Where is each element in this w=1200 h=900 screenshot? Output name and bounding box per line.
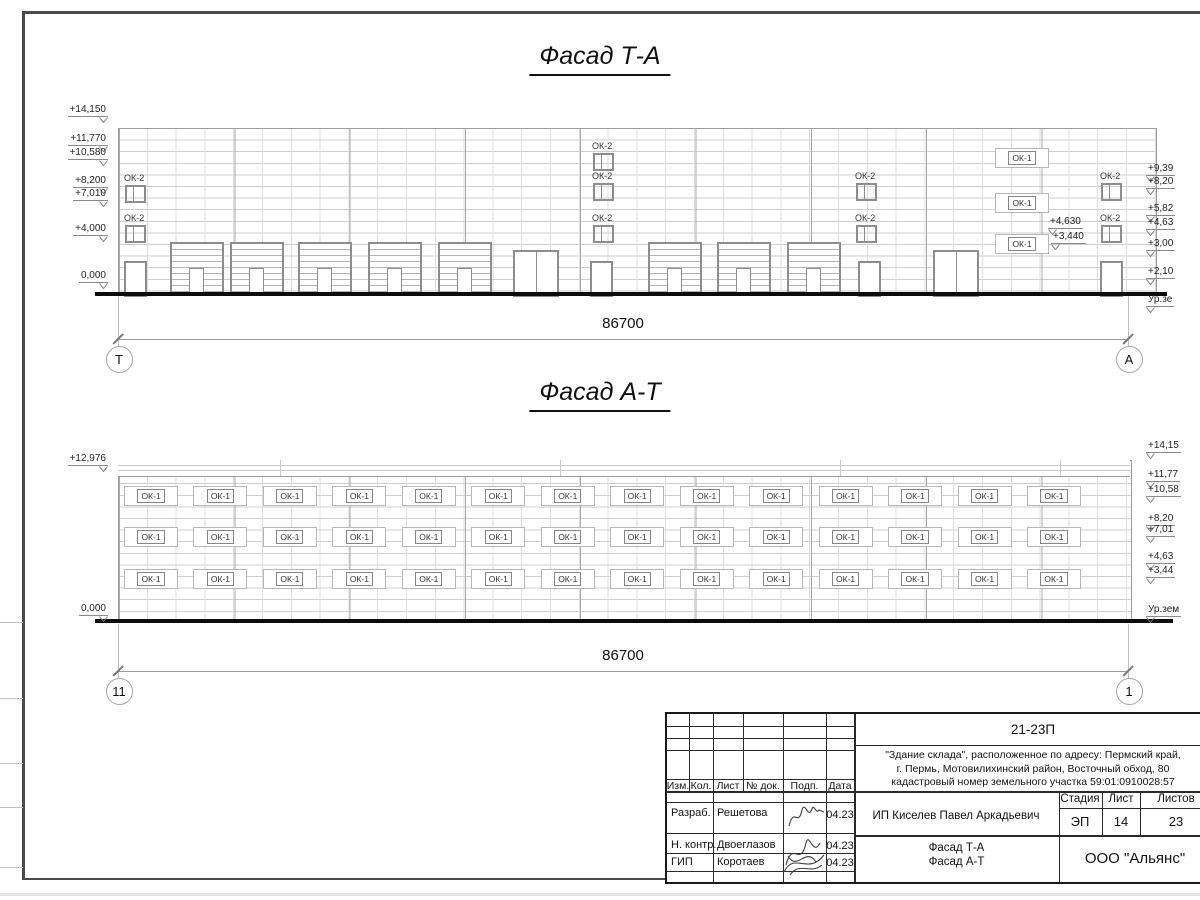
double-door <box>513 250 559 297</box>
elevation-mark-icon <box>1146 617 1155 623</box>
elevation-label: +3,44 <box>1146 565 1175 584</box>
window-label: ОК-1 <box>485 489 512 503</box>
window-label: ОК-1 <box>1008 151 1035 165</box>
window-ok1: ОК-1 <box>680 569 734 589</box>
facade2-dimension-value: 86700 <box>602 647 644 664</box>
tb-line <box>854 745 1200 746</box>
window-ok1: ОК-1 <box>749 569 803 589</box>
window-ok2 <box>856 225 877 243</box>
tb-line <box>667 726 854 727</box>
elevation-mark-icon <box>1146 189 1155 195</box>
title-block: Изм. Кол. Лист № док. Подп. Дата 21-23П … <box>665 712 1200 884</box>
window-label: ОК-1 <box>901 530 928 544</box>
elevation-label: +2,10 <box>1146 266 1175 285</box>
facade1-title: Фасад Т-А <box>529 42 670 76</box>
window-ok1: ОК-1 <box>263 569 317 589</box>
elevation-value: +12,976 <box>68 453 108 466</box>
elevation-label: +7,01 <box>1146 524 1175 543</box>
elevation-label: +10,580 <box>68 147 108 166</box>
facade2-ground-line <box>95 619 1173 623</box>
window-label: ОК-1 <box>1040 530 1067 544</box>
window-ok1: ОК-1 <box>124 527 178 547</box>
elevation-mark-icon <box>99 616 108 622</box>
window-ok1: ОК-1 <box>1027 527 1081 547</box>
elevation-label: 0,000 <box>79 270 108 289</box>
window-label: ОК-1 <box>693 489 720 503</box>
drawing-sheet: Фасад Т-А 86700 Т А Фасад А-Т 86700 11 1 <box>0 0 1200 900</box>
side-stamp-line <box>0 698 23 699</box>
elevation-label: +14,150 <box>68 104 108 123</box>
elevation-mark-icon <box>1146 251 1155 257</box>
window-label: ОК-2 <box>1100 171 1120 181</box>
elevation-value: Ур.зе <box>1146 294 1174 307</box>
window-ok1: ОК-1 <box>402 486 456 506</box>
elevation-value: +3,440 <box>1051 231 1086 244</box>
window-ok1: ОК-1 <box>888 486 942 506</box>
axis-bubble-1: 1 <box>1116 678 1143 705</box>
tb-project-description: "Здание склада", расположенное по адресу… <box>854 749 1200 790</box>
elevation-value: +5,82 <box>1146 203 1175 216</box>
window-label: ОК-1 <box>554 530 581 544</box>
tb-rev-header: Кол. <box>691 780 712 792</box>
window-ok1: ОК-1 <box>995 234 1049 254</box>
window-label: ОК-2 <box>855 213 875 223</box>
elevation-value: +8,200 <box>73 175 108 188</box>
gate-wicket-door <box>736 268 751 294</box>
window-label: ОК-1 <box>346 572 373 586</box>
window-ok1: ОК-1 <box>995 148 1049 168</box>
window-label: ОК-1 <box>137 489 164 503</box>
elevation-label: +4,000 <box>73 223 108 242</box>
window-ok2 <box>593 183 614 201</box>
parapet-joint <box>840 460 841 476</box>
window-ok1: ОК-1 <box>541 569 595 589</box>
window-label: ОК-2 <box>592 141 612 151</box>
window-ok2 <box>593 153 614 171</box>
elevation-mark-icon <box>1146 497 1155 503</box>
window-label: ОК-1 <box>207 572 234 586</box>
elevation-mark-icon <box>1146 578 1155 584</box>
elevation-value: +10,580 <box>68 147 108 160</box>
window-ok1: ОК-1 <box>193 486 247 506</box>
window-label: ОК-1 <box>763 489 790 503</box>
tb-sheet-value: 14 <box>1114 814 1128 829</box>
facade1-ground-line <box>95 292 1167 296</box>
tb-date: 04.23 <box>826 857 854 869</box>
tb-total-value: 23 <box>1169 814 1183 829</box>
window-ok1: ОК-1 <box>541 486 595 506</box>
elevation-label: +8,20 <box>1146 176 1175 195</box>
window-ok1: ОК-1 <box>680 527 734 547</box>
elevation-value: +8,20 <box>1146 176 1175 189</box>
facade2-dimension-line <box>118 671 1128 672</box>
sectional-gate <box>717 242 771 296</box>
elevation-label: +3,00 <box>1146 238 1175 257</box>
tb-line <box>667 750 854 751</box>
sectional-gate <box>230 242 284 296</box>
window-label: ОК-1 <box>554 572 581 586</box>
tb-stage-label: Стадия <box>1060 793 1099 805</box>
elevation-label: Ур.зе <box>1146 294 1174 313</box>
window-label: ОК-1 <box>1008 237 1035 251</box>
elevation-value: 0,000 <box>79 603 108 616</box>
sheet-border-top <box>23 11 1200 14</box>
gate-wicket-door <box>189 268 204 294</box>
window-ok2 <box>1101 225 1122 243</box>
window-ok1: ОК-1 <box>471 486 525 506</box>
facade2-parapet <box>118 460 1130 477</box>
window-label: ОК-1 <box>624 489 651 503</box>
window-label: ОК-1 <box>415 489 442 503</box>
elevation-mark-icon <box>1146 307 1155 313</box>
window-ok1: ОК-1 <box>749 527 803 547</box>
window-label: ОК-1 <box>832 530 859 544</box>
window-label: ОК-1 <box>276 572 303 586</box>
window-ok1: ОК-1 <box>958 569 1012 589</box>
window-label: ОК-1 <box>346 489 373 503</box>
elevation-label: +12,976 <box>68 453 108 472</box>
facade1-dimension-value: 86700 <box>602 315 644 332</box>
gate-wicket-door <box>249 268 264 294</box>
window-ok1: ОК-1 <box>193 527 247 547</box>
window-label: ОК-1 <box>415 572 442 586</box>
window-ok1: ОК-1 <box>332 569 386 589</box>
tb-role: Н. контр. <box>671 839 716 851</box>
window-ok1: ОК-1 <box>1027 486 1081 506</box>
window-ok1: ОК-1 <box>819 569 873 589</box>
facade1-dimension-line <box>118 339 1128 340</box>
side-stamp-line <box>0 807 23 808</box>
axis-bubble-T: Т <box>106 346 133 373</box>
elevation-value: +9,39 <box>1146 163 1175 176</box>
gate-wicket-door <box>387 268 402 294</box>
window-label: ОК-1 <box>1040 572 1067 586</box>
elevation-label: Ур.зем <box>1146 604 1181 623</box>
window-label: ОК-1 <box>346 530 373 544</box>
window-label: ОК-1 <box>1008 196 1035 210</box>
tb-role: ГИП <box>671 856 693 868</box>
gate-wicket-door <box>667 268 682 294</box>
tb-rev-header: Подп. <box>791 780 819 792</box>
window-label: ОК-1 <box>485 572 512 586</box>
window-ok1: ОК-1 <box>888 569 942 589</box>
window-label: ОК-1 <box>1040 489 1067 503</box>
tb-drawing-title: Фасад Т-А Фасад А-Т <box>854 842 1059 869</box>
window-label: ОК-1 <box>763 530 790 544</box>
elevation-mark-icon <box>1146 279 1155 285</box>
parapet-joint <box>1060 460 1061 476</box>
window-ok1: ОК-1 <box>610 527 664 547</box>
elevation-value: +11,770 <box>68 133 108 146</box>
window-label: ОК-1 <box>971 489 998 503</box>
elevation-mark-icon <box>1051 244 1060 250</box>
window-ok1: ОК-1 <box>263 527 317 547</box>
elevation-value: +7,01 <box>1146 524 1175 537</box>
tb-rev-header: Дата <box>828 780 851 792</box>
window-ok1: ОК-1 <box>958 486 1012 506</box>
tb-stage-value: ЭП <box>1071 814 1090 829</box>
window-label: ОК-2 <box>124 173 144 183</box>
window-ok1: ОК-1 <box>995 193 1049 213</box>
window-ok1: ОК-1 <box>402 569 456 589</box>
window-ok2 <box>856 183 877 201</box>
window-ok1: ОК-1 <box>1027 569 1081 589</box>
window-ok1: ОК-1 <box>888 527 942 547</box>
tb-rev-header: Изм. <box>667 780 690 792</box>
sectional-gate <box>787 242 841 296</box>
window-label: ОК-1 <box>276 530 303 544</box>
tb-line <box>713 714 714 882</box>
elevation-label: +3,440 <box>1051 231 1086 250</box>
elevation-value: Ур.зем <box>1146 604 1181 617</box>
tb-total-label: Листов <box>1157 793 1194 805</box>
tb-client: ИП Киселев Павел Аркадьевич <box>873 810 1040 822</box>
elevation-label: +4,63 <box>1146 217 1175 236</box>
window-ok2 <box>125 225 146 243</box>
window-label: ОК-1 <box>832 572 859 586</box>
page-edge <box>0 893 1200 896</box>
side-stamp-line <box>0 867 23 868</box>
window-label: ОК-1 <box>276 489 303 503</box>
window-label: ОК-1 <box>763 572 790 586</box>
tb-name: Решетова <box>717 807 767 819</box>
window-label: ОК-1 <box>485 530 512 544</box>
tb-doc-number: 21-23П <box>1011 722 1055 737</box>
tb-date: 04.23 <box>826 809 854 821</box>
tb-name: Двоеглазов <box>717 839 775 851</box>
elevation-value: +3,00 <box>1146 238 1175 251</box>
elevation-mark-icon <box>1146 230 1155 236</box>
window-label: ОК-1 <box>971 572 998 586</box>
elevation-value: +14,150 <box>68 104 108 117</box>
side-stamp-line <box>0 622 23 623</box>
tb-line <box>854 835 1200 837</box>
elevation-value: +10,58 <box>1146 484 1181 497</box>
window-ok2 <box>593 225 614 243</box>
sectional-gate <box>298 242 352 296</box>
elevation-label: +7,010 <box>73 188 108 207</box>
window-ok1: ОК-1 <box>402 527 456 547</box>
tb-line <box>667 738 854 739</box>
elevation-mark-icon <box>99 201 108 207</box>
tb-line <box>1059 808 1200 809</box>
window-label: ОК-1 <box>624 530 651 544</box>
window-label: ОК-1 <box>415 530 442 544</box>
window-label: ОК-1 <box>901 489 928 503</box>
window-label: ОК-1 <box>624 572 651 586</box>
window-label: ОК-1 <box>693 530 720 544</box>
double-door <box>933 250 979 297</box>
window-ok1: ОК-1 <box>332 486 386 506</box>
elevation-mark-icon <box>99 283 108 289</box>
sectional-gate <box>648 242 702 296</box>
elevation-value: +4,000 <box>73 223 108 236</box>
window-ok1: ОК-1 <box>680 486 734 506</box>
window-ok1: ОК-1 <box>610 569 664 589</box>
tb-role: Разраб. <box>671 807 711 819</box>
window-ok1: ОК-1 <box>471 527 525 547</box>
gate-wicket-door <box>317 268 332 294</box>
sectional-gate <box>170 242 224 296</box>
signature-scribble <box>780 831 827 877</box>
side-stamp-line <box>0 763 23 764</box>
elevation-mark-icon <box>99 236 108 242</box>
window-ok1: ОК-1 <box>610 486 664 506</box>
elevation-mark-icon <box>1146 453 1155 459</box>
window-ok1: ОК-1 <box>263 486 317 506</box>
elevation-value: +3,44 <box>1146 565 1175 578</box>
sheet-border-left <box>22 11 25 880</box>
window-label: ОК-2 <box>1100 213 1120 223</box>
window-ok1: ОК-1 <box>958 527 1012 547</box>
elevation-value: +4,630 <box>1048 216 1083 229</box>
gate-wicket-door <box>806 268 821 294</box>
tb-sheet-label: Лист <box>1109 793 1134 805</box>
window-ok1: ОК-1 <box>124 486 178 506</box>
window-ok1: ОК-1 <box>124 569 178 589</box>
window-ok1: ОК-1 <box>193 569 247 589</box>
window-label: ОК-1 <box>901 572 928 586</box>
elevation-value: +11,77 <box>1146 469 1180 482</box>
window-ok2 <box>1101 183 1122 201</box>
elevation-label: +14,15 <box>1146 440 1181 459</box>
elevation-mark-icon <box>99 160 108 166</box>
window-ok1: ОК-1 <box>749 486 803 506</box>
axis-bubble-11: 11 <box>106 678 133 705</box>
axis-bubble-A: А <box>1116 346 1143 373</box>
elevation-value: 0,000 <box>79 270 108 283</box>
sectional-gate <box>368 242 422 296</box>
window-label: ОК-1 <box>137 572 164 586</box>
elevation-label: +10,58 <box>1146 484 1181 503</box>
window-label: ОК-1 <box>971 530 998 544</box>
window-ok1: ОК-1 <box>332 527 386 547</box>
tb-name: Коротаев <box>717 856 765 868</box>
tb-rev-header: Лист <box>717 780 740 792</box>
elevation-value: +4,63 <box>1146 217 1175 230</box>
window-label: ОК-1 <box>137 530 164 544</box>
window-label: ОК-2 <box>124 213 144 223</box>
window-ok1: ОК-1 <box>471 569 525 589</box>
elevation-mark-icon <box>99 117 108 123</box>
window-ok1: ОК-1 <box>541 527 595 547</box>
window-label: ОК-1 <box>832 489 859 503</box>
tb-line <box>1140 791 1141 835</box>
window-label: ОК-1 <box>207 530 234 544</box>
gate-wicket-door <box>457 268 472 294</box>
elevation-value: +2,10 <box>1146 266 1175 279</box>
elevation-mark-icon <box>1146 537 1155 543</box>
window-ok1: ОК-1 <box>819 486 873 506</box>
elevation-value: +7,010 <box>73 188 108 201</box>
parapet-joint <box>280 460 281 476</box>
elevation-value: +14,15 <box>1146 440 1181 453</box>
facade2-title: Фасад А-Т <box>529 378 670 412</box>
tb-date: 04.23 <box>826 840 854 852</box>
window-label: ОК-1 <box>554 489 581 503</box>
tb-line <box>1102 791 1103 835</box>
window-ok2 <box>125 185 146 203</box>
window-label: ОК-2 <box>855 171 875 181</box>
elevation-label: 0,000 <box>79 603 108 622</box>
parapet-joint <box>560 460 561 476</box>
tb-organization: ООО "Альянс" <box>1085 850 1185 867</box>
elevation-mark-icon <box>99 466 108 472</box>
signature-scribble <box>785 799 825 832</box>
window-label: ОК-1 <box>693 572 720 586</box>
window-ok1: ОК-1 <box>819 527 873 547</box>
window-label: ОК-2 <box>592 171 612 181</box>
elevation-value: +4,63 <box>1146 551 1175 564</box>
window-label: ОК-2 <box>592 213 612 223</box>
tb-rev-header: № док. <box>746 780 780 792</box>
sectional-gate <box>438 242 492 296</box>
tb-line <box>667 802 854 803</box>
window-label: ОК-1 <box>207 489 234 503</box>
